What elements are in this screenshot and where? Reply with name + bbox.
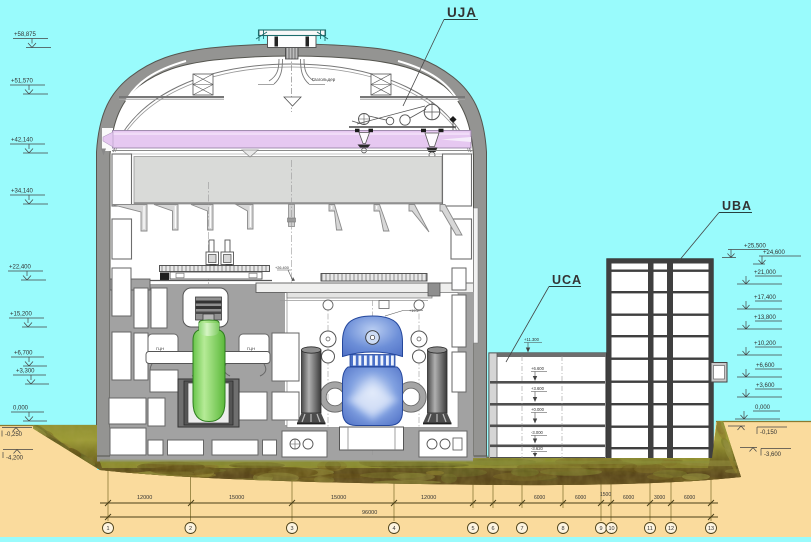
svg-text:+51,570: +51,570 — [11, 79, 34, 85]
svg-text:3: 3 — [290, 526, 293, 532]
svg-text:+3,300: +3,300 — [16, 369, 35, 375]
svg-text:-4,200: -4,200 — [6, 456, 24, 462]
svg-text:-3,600: -3,600 — [764, 452, 782, 458]
svg-text:7: 7 — [520, 526, 523, 532]
svg-text:0,000: 0,000 — [13, 406, 29, 412]
svg-text:12: 12 — [668, 526, 674, 532]
svg-text:4: 4 — [392, 526, 395, 532]
svg-text:1: 1 — [106, 526, 109, 532]
svg-text:-3.620: -3.620 — [531, 446, 544, 451]
svg-text:12000: 12000 — [421, 495, 436, 501]
svg-text:-0,150: -0,150 — [760, 430, 778, 436]
svg-text:ГЦН: ГЦН — [247, 346, 255, 351]
svg-text:UBA: UBA — [722, 199, 752, 213]
svg-text:6000: 6000 — [684, 495, 695, 501]
svg-text:6000: 6000 — [623, 495, 634, 501]
svg-text:+3.600: +3.600 — [531, 386, 545, 391]
svg-text:96000: 96000 — [362, 510, 377, 516]
svg-text:15000: 15000 — [331, 495, 346, 501]
svg-text:UJA: UJA — [447, 5, 477, 20]
svg-text:+21,000: +21,000 — [754, 270, 777, 276]
svg-text:+6.600: +6.600 — [531, 366, 545, 371]
svg-text:11: 11 — [647, 526, 653, 532]
svg-text:+6,700: +6,700 — [14, 351, 33, 357]
svg-text:8: 8 — [561, 526, 564, 532]
svg-text:+13,800: +13,800 — [754, 315, 777, 321]
svg-text:+3,600: +3,600 — [756, 383, 775, 389]
svg-text:+58,875: +58,875 — [14, 32, 37, 38]
svg-text:-0,250: -0,250 — [5, 432, 23, 438]
svg-text:3000: 3000 — [654, 495, 665, 501]
svg-text:+22,400: +22,400 — [9, 265, 32, 271]
svg-text:UCA: UCA — [552, 273, 582, 287]
svg-text:+17,400: +17,400 — [754, 295, 777, 301]
svg-text:2: 2 — [189, 526, 192, 532]
svg-text:5: 5 — [471, 526, 474, 532]
svg-text:10: 10 — [608, 526, 614, 532]
svg-text:+25,500: +25,500 — [744, 244, 767, 250]
svg-text:+15,200: +15,200 — [10, 312, 33, 318]
svg-text:6000: 6000 — [534, 495, 545, 501]
svg-text:+6,600: +6,600 — [756, 363, 775, 369]
svg-text:9: 9 — [599, 526, 602, 532]
svg-text:12000: 12000 — [137, 495, 152, 501]
svg-text:+26.400: +26.400 — [275, 266, 289, 270]
svg-text:ГЦН: ГЦН — [156, 346, 164, 351]
svg-text:15000: 15000 — [229, 495, 244, 501]
svg-text:1500: 1500 — [600, 492, 611, 498]
svg-text:13: 13 — [708, 526, 714, 532]
svg-text:6: 6 — [491, 526, 494, 532]
svg-text:0,000: 0,000 — [755, 405, 771, 411]
svg-text:Газгольдер: Газгольдер — [312, 77, 336, 82]
svg-text:+24,600: +24,600 — [763, 250, 786, 256]
svg-text:+0.000: +0.000 — [531, 407, 545, 412]
svg-text:6000: 6000 — [575, 495, 586, 501]
svg-text:+34,140: +34,140 — [11, 189, 34, 195]
svg-text:-3.000: -3.000 — [531, 430, 544, 435]
svg-text:+42,140: +42,140 — [11, 138, 34, 144]
svg-text:+11.300: +11.300 — [524, 337, 540, 342]
svg-text:+10,200: +10,200 — [754, 341, 777, 347]
